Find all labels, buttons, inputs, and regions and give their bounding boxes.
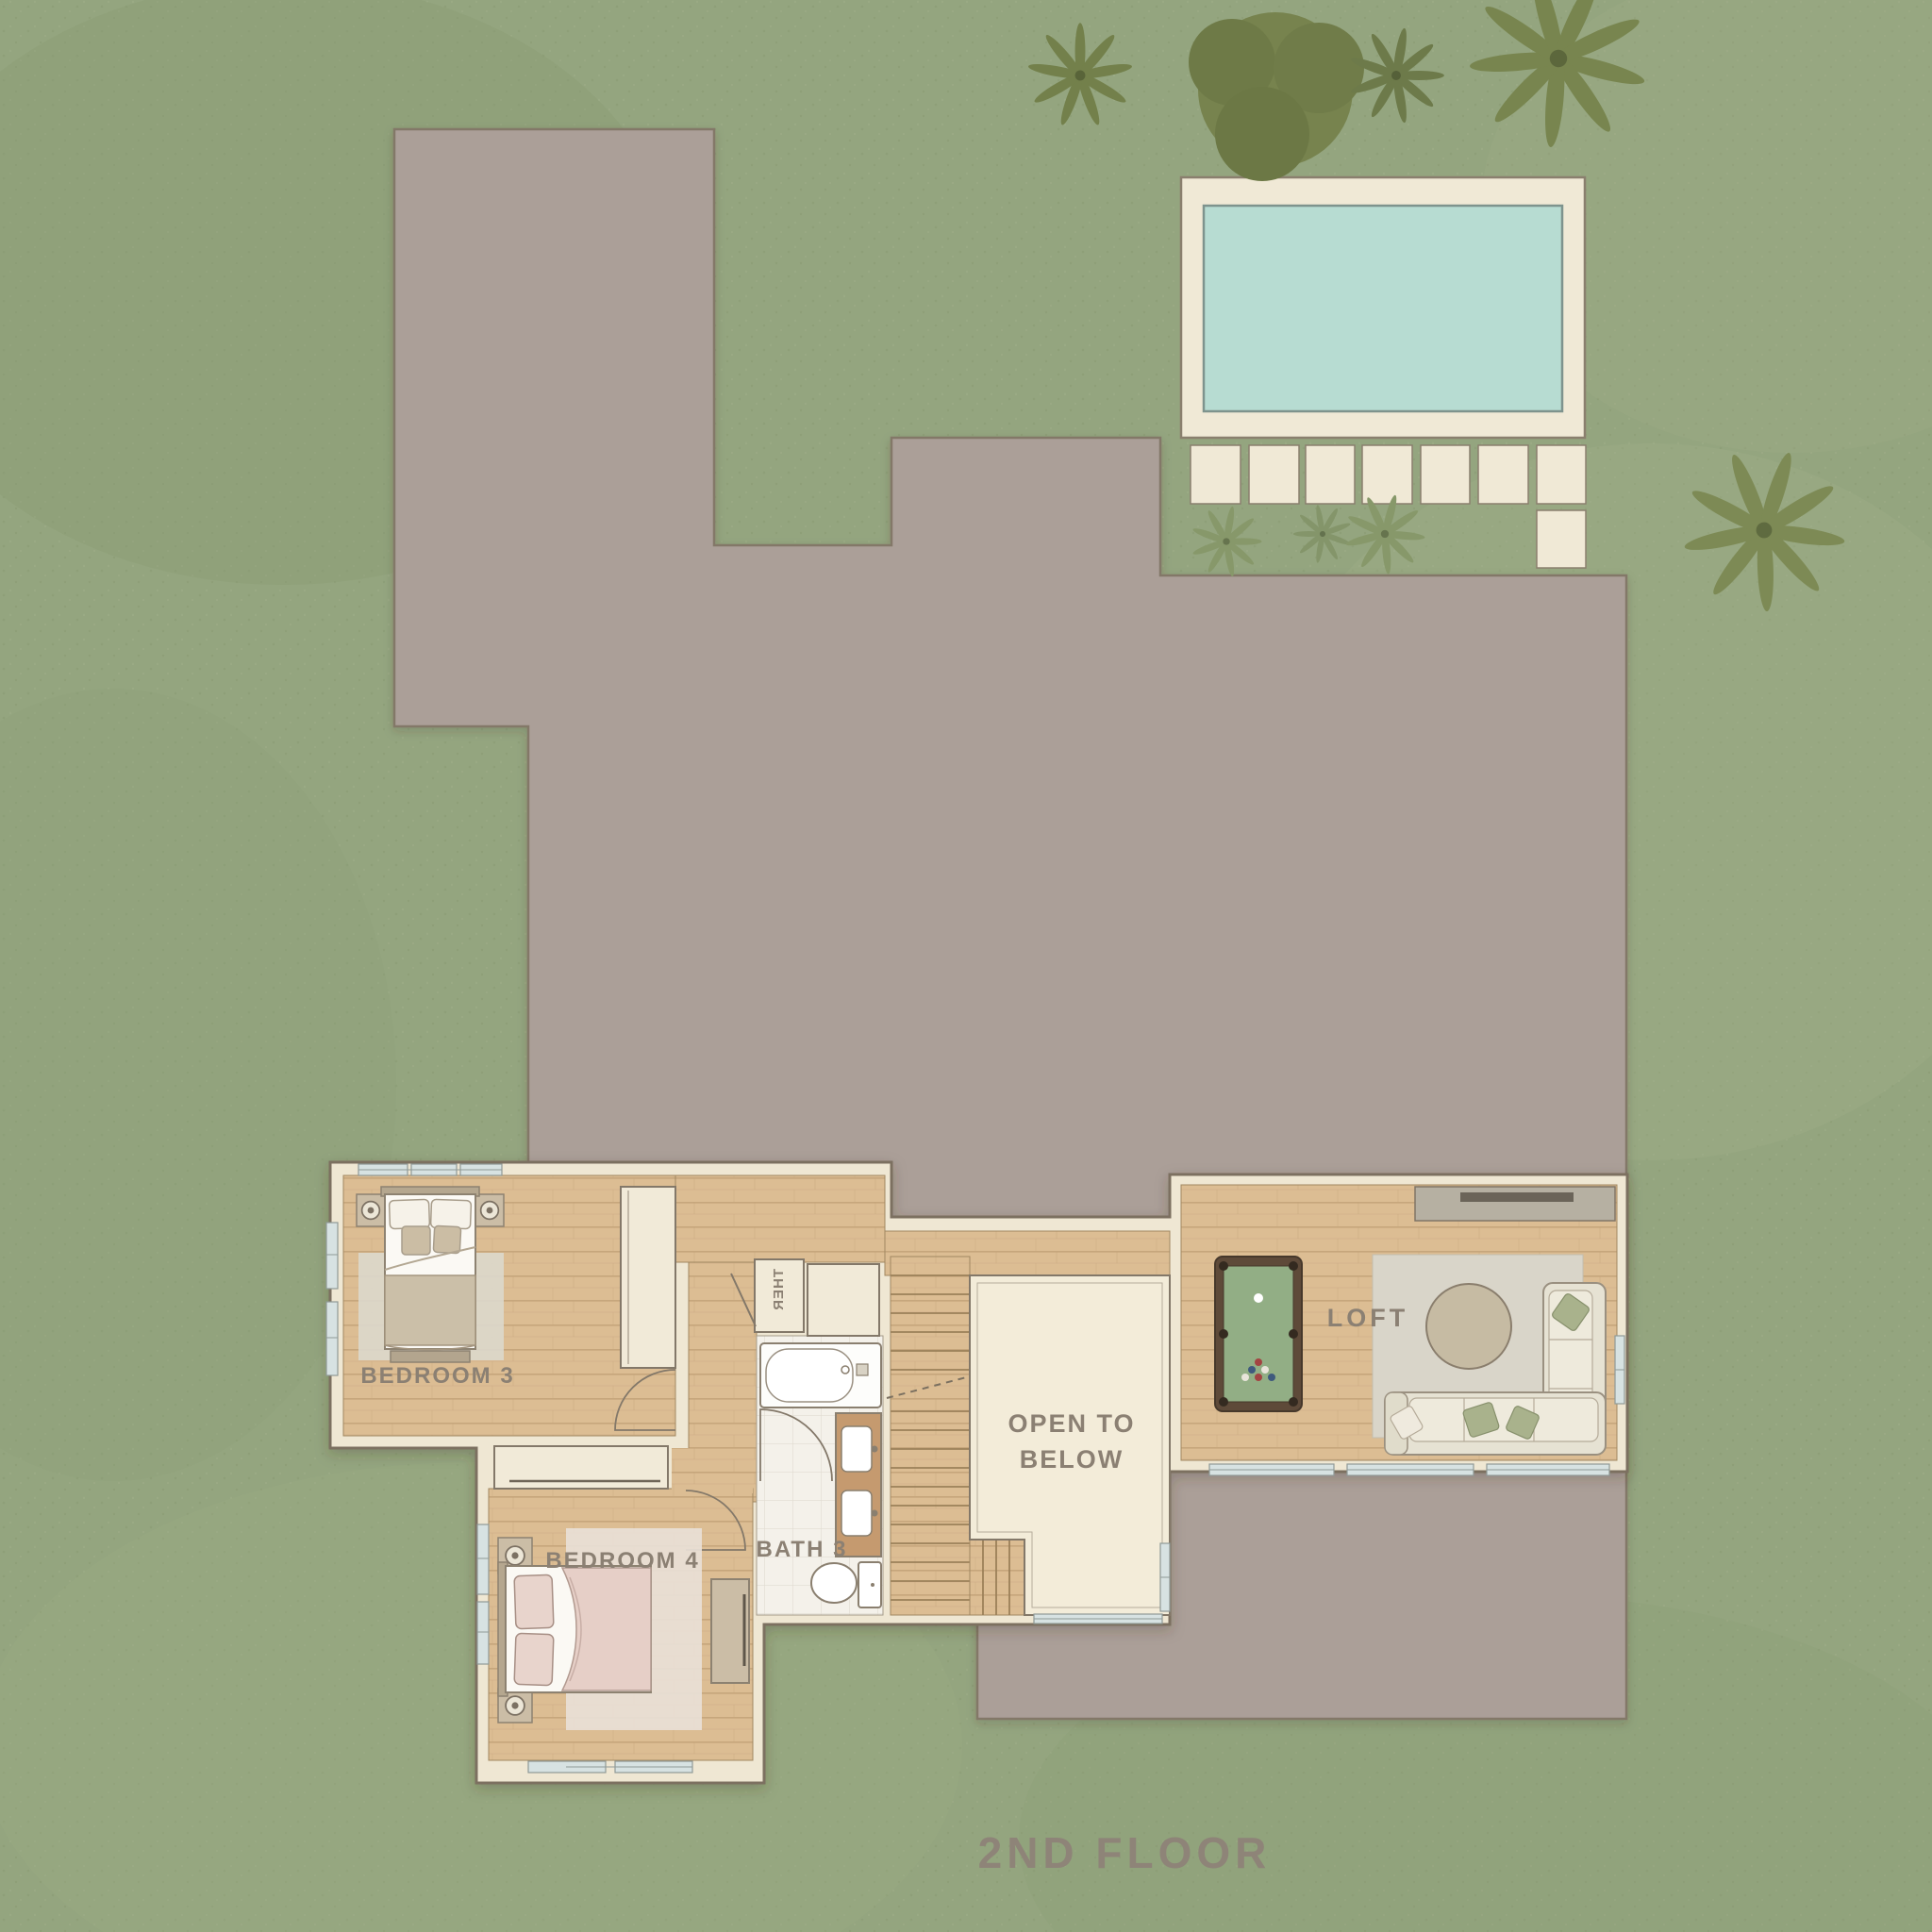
bath3-label: BATH 3 <box>757 1537 848 1562</box>
bedroom4-label: BEDROOM 4 <box>545 1548 699 1574</box>
open-to-below-label-line2: BELOW <box>1020 1445 1124 1474</box>
lamp-icon <box>506 1696 525 1715</box>
bed-pillow <box>514 1574 554 1628</box>
sink-faucet-icon <box>872 1510 878 1517</box>
bedroom3-label: BEDROOM 3 <box>360 1363 514 1389</box>
tub-faucet-icon <box>857 1364 868 1375</box>
bed-pillow <box>430 1199 471 1228</box>
toilet-tank <box>858 1562 881 1607</box>
sink <box>841 1491 872 1536</box>
page-title: 2ND FLOOR <box>978 1828 1272 1877</box>
bedroom3-closet <box>621 1187 675 1368</box>
bed-pillow <box>389 1199 429 1228</box>
toilet-bowl <box>811 1563 857 1603</box>
floor-plan-canvas: THER <box>0 0 1932 1932</box>
soundbar <box>1460 1192 1574 1202</box>
lamp-icon <box>481 1202 499 1220</box>
media-console <box>1415 1187 1615 1221</box>
bed-cushion <box>402 1226 430 1255</box>
stair-lower-flight <box>970 1540 1024 1615</box>
window <box>326 1223 338 1289</box>
round-ottoman <box>1426 1284 1511 1369</box>
lamp-icon <box>506 1546 525 1565</box>
bed-cushion <box>433 1225 460 1253</box>
bed-pillow <box>514 1633 554 1685</box>
hallway-top-floor <box>675 1175 885 1262</box>
window <box>477 1524 489 1594</box>
pool-table <box>1215 1257 1302 1411</box>
hall-closet <box>808 1264 879 1336</box>
open-to-below-label-line1: OPEN TO <box>1008 1409 1135 1438</box>
cue-ball <box>1254 1293 1263 1303</box>
bed-bench <box>391 1351 470 1362</box>
sink-faucet-icon <box>872 1446 878 1453</box>
utility-closet-label: THER <box>771 1269 787 1311</box>
window <box>326 1302 338 1375</box>
bathtub-basin <box>766 1349 853 1402</box>
loft-label: LOFT <box>1327 1304 1408 1332</box>
bed-blanket <box>385 1275 475 1345</box>
swimming-pool <box>1204 206 1562 411</box>
lamp-icon <box>362 1202 380 1220</box>
bedroom4-entry-floor <box>672 1448 753 1493</box>
sink <box>841 1426 872 1472</box>
window <box>477 1602 489 1664</box>
